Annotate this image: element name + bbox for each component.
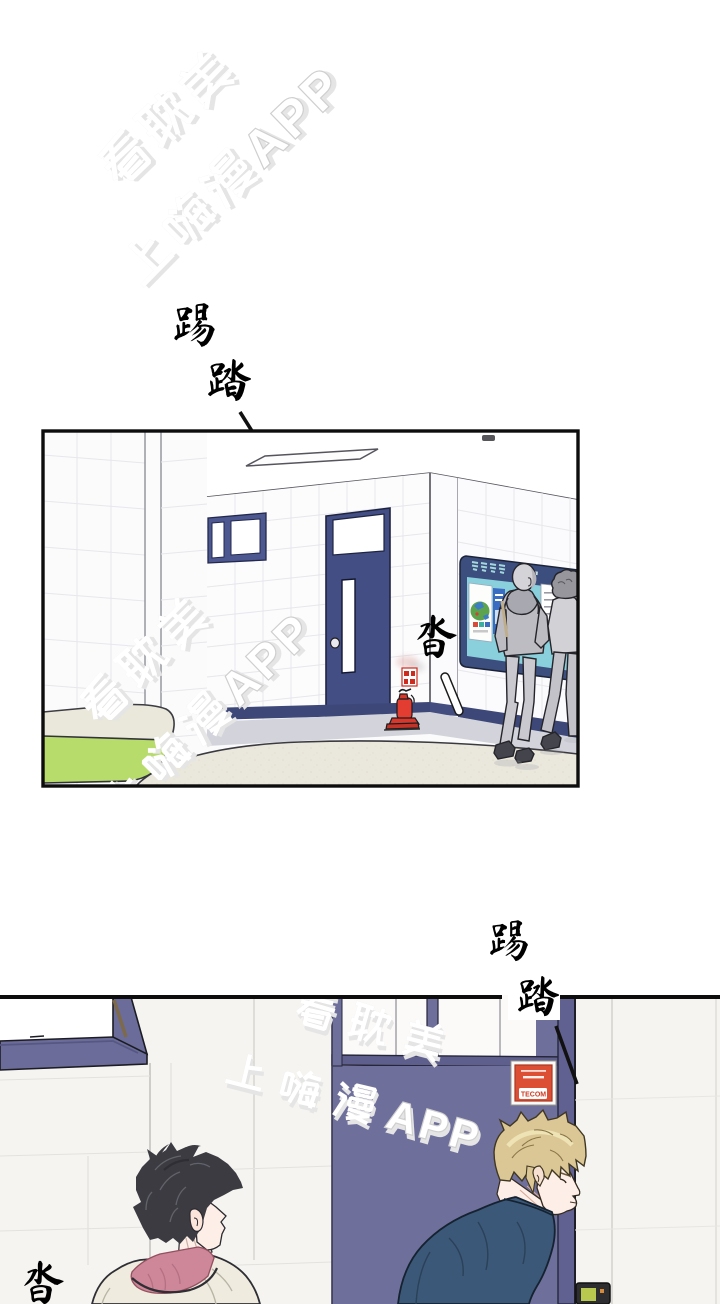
- svg-text:TECOM: TECOM: [521, 1092, 546, 1099]
